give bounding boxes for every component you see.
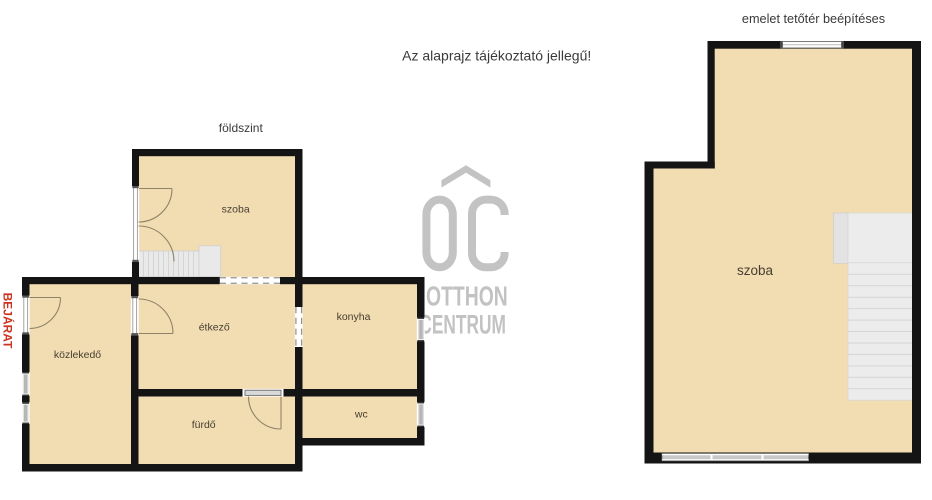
svg-text:emelet tetőtér beépítéses: emelet tetőtér beépítéses: [742, 12, 885, 26]
svg-text:szoba: szoba: [222, 203, 250, 215]
svg-text:wc: wc: [354, 409, 368, 421]
svg-text:étkező: étkező: [199, 322, 230, 334]
svg-text:Az alaprajz tájékoztató jelleg: Az alaprajz tájékoztató jellegű!: [402, 48, 591, 64]
svg-text:CENTRUM: CENTRUM: [419, 310, 506, 340]
svg-text:szoba: szoba: [737, 263, 774, 278]
svg-text:földszint: földszint: [219, 121, 264, 135]
svg-text:konyha: konyha: [337, 311, 371, 323]
svg-text:OTTHON: OTTHON: [426, 281, 508, 312]
svg-text:közlekedő: közlekedő: [54, 349, 101, 361]
svg-text:fürdő: fürdő: [192, 419, 216, 431]
svg-text:BEJÁRAT: BEJÁRAT: [1, 293, 16, 349]
